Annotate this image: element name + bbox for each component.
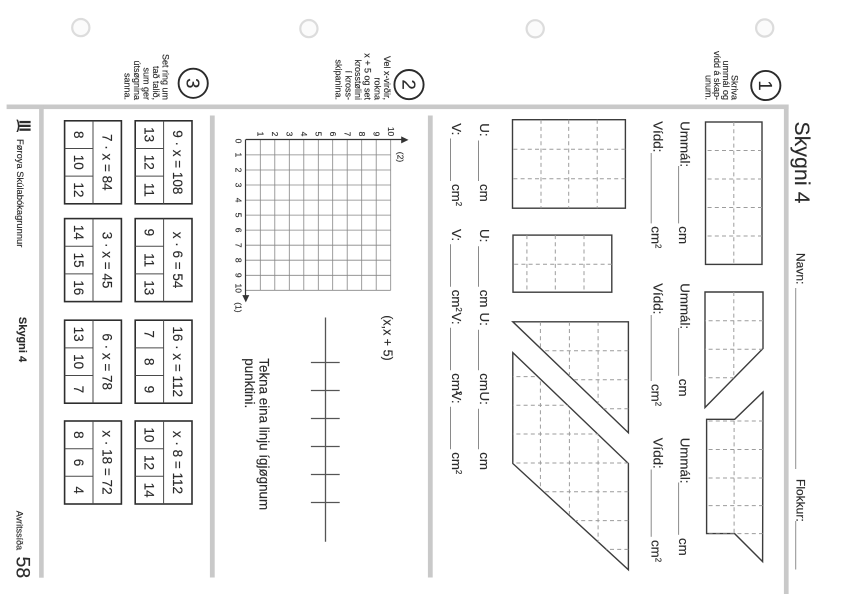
- svg-text:Vídd:: Vídd:: [650, 121, 665, 152]
- svg-text:(x,x + 5): (x,x + 5): [381, 315, 395, 361]
- svg-text:V:: V:: [449, 313, 464, 325]
- svg-text:4: 4: [234, 198, 244, 203]
- svg-text:í kross-: í kross-: [344, 70, 354, 100]
- svg-text:9: 9: [234, 273, 244, 278]
- svg-text:2: 2: [234, 168, 244, 173]
- svg-text:58: 58: [12, 557, 34, 579]
- svg-text:Skygni 4: Skygni 4: [16, 317, 28, 363]
- svg-text:Tekna eina linju ígjøgnum: Tekna eina linju ígjøgnum: [257, 358, 272, 510]
- svg-text:0: 0: [234, 139, 244, 144]
- svg-text:6: 6: [328, 132, 338, 137]
- svg-text:U:: U:: [477, 123, 492, 136]
- svg-text:cm: cm: [676, 379, 691, 397]
- svg-text:sum ger: sum ger: [141, 67, 151, 100]
- svg-text:3 · x = 45: 3 · x = 45: [99, 232, 114, 289]
- svg-text:7 · x = 84: 7 · x = 84: [99, 134, 114, 191]
- svg-text:U:: U:: [477, 313, 492, 326]
- svg-text:Set ring um: Set ring um: [160, 54, 170, 100]
- svg-text:Ummál:: Ummál:: [678, 121, 693, 167]
- svg-text:rokna: rokna: [373, 77, 383, 100]
- svg-text:U:: U:: [477, 392, 492, 405]
- svg-text:13: 13: [71, 327, 86, 342]
- svg-text:unum.: unum.: [703, 75, 713, 100]
- svg-text:6 · x = 78: 6 · x = 78: [99, 333, 114, 390]
- svg-text:9: 9: [371, 132, 381, 137]
- svg-text:sanna.: sanna.: [123, 73, 133, 100]
- svg-text:12: 12: [71, 182, 86, 197]
- svg-text:cm: cm: [676, 538, 691, 556]
- svg-text:x · 6 = 54: x · 6 = 54: [170, 232, 185, 289]
- svg-text:x · 18 = 72: x · 18 = 72: [99, 430, 114, 494]
- svg-text:Skygni 4: Skygni 4: [790, 122, 813, 204]
- svg-text:(1): (1): [234, 302, 244, 313]
- svg-text:punktini.: punktini.: [242, 358, 257, 408]
- svg-text:13: 13: [142, 127, 157, 142]
- svg-text:9 · x = 108: 9 · x = 108: [170, 130, 185, 194]
- svg-text:cm2: cm2: [649, 384, 664, 407]
- svg-text:Ummál:: Ummál:: [678, 438, 693, 484]
- svg-text:8: 8: [357, 132, 367, 137]
- svg-text:útsøgnina: útsøgnina: [132, 60, 142, 100]
- svg-text:2: 2: [398, 79, 419, 89]
- svg-text:U:: U:: [477, 229, 492, 242]
- svg-text:11: 11: [142, 183, 157, 197]
- svg-text:12: 12: [142, 155, 157, 170]
- svg-text:3: 3: [234, 183, 244, 188]
- svg-text:Avritssíða: Avritssíða: [15, 511, 25, 550]
- svg-text:12: 12: [142, 455, 157, 470]
- svg-text:(2): (2): [396, 152, 406, 163]
- svg-text:8: 8: [142, 358, 157, 366]
- svg-text:cm: cm: [477, 452, 492, 470]
- svg-text:1: 1: [255, 132, 265, 137]
- svg-text:10: 10: [142, 427, 157, 442]
- svg-text:6: 6: [71, 459, 86, 467]
- svg-text:Vídd:: Vídd:: [650, 283, 665, 314]
- svg-text:6: 6: [234, 228, 244, 233]
- svg-text:cm: cm: [477, 373, 492, 391]
- svg-text:5: 5: [234, 213, 244, 218]
- svg-text:14: 14: [71, 225, 86, 241]
- svg-text:Flokkur:: Flokkur:: [794, 479, 808, 522]
- svg-text:cm: cm: [676, 226, 691, 244]
- svg-text:Vel x-virðir,: Vel x-virðir,: [382, 56, 392, 100]
- svg-text:V:: V:: [449, 123, 464, 135]
- svg-text:9: 9: [142, 386, 157, 394]
- svg-text:cm: cm: [477, 184, 492, 202]
- svg-text:3: 3: [183, 78, 204, 88]
- svg-text:8: 8: [71, 431, 86, 439]
- svg-text:tað talið,: tað talið,: [151, 66, 161, 100]
- svg-text:11: 11: [142, 253, 157, 267]
- svg-text:cm2: cm2: [649, 540, 664, 563]
- svg-text:skipanina.: skipanina.: [334, 59, 344, 100]
- svg-text:Skriva: Skriva: [730, 75, 740, 100]
- svg-text:1: 1: [755, 80, 776, 90]
- svg-text:15: 15: [71, 253, 86, 268]
- svg-text:7: 7: [234, 243, 244, 248]
- svg-text:10: 10: [71, 354, 86, 369]
- svg-text:vídd á skap-: vídd á skap-: [712, 51, 722, 100]
- svg-text:7: 7: [142, 330, 157, 338]
- svg-text:4: 4: [299, 132, 309, 137]
- svg-text:cm2: cm2: [449, 290, 464, 313]
- svg-text:V:: V:: [449, 392, 464, 404]
- svg-text:cm: cm: [477, 290, 492, 308]
- svg-text:8: 8: [234, 258, 244, 263]
- svg-text:V:: V:: [449, 229, 464, 241]
- svg-text:16 · x = 112: 16 · x = 112: [170, 326, 185, 397]
- svg-text:7: 7: [342, 132, 352, 137]
- svg-text:x · 8 = 112: x · 8 = 112: [170, 431, 185, 494]
- svg-text:8: 8: [71, 131, 86, 139]
- svg-text:3: 3: [284, 132, 294, 137]
- svg-text:Ummál:: Ummál:: [678, 283, 693, 329]
- svg-text:7: 7: [71, 386, 86, 394]
- svg-text:10: 10: [386, 127, 396, 137]
- svg-text:14: 14: [142, 483, 157, 499]
- svg-text:cm2: cm2: [449, 452, 464, 475]
- svg-text:Vídd:: Vídd:: [650, 438, 665, 469]
- svg-text:Navn:: Navn:: [794, 253, 808, 284]
- svg-text:16: 16: [71, 280, 86, 295]
- svg-text:2: 2: [270, 132, 280, 137]
- svg-text:9: 9: [142, 229, 157, 237]
- svg-text:ummál og: ummál og: [721, 60, 731, 100]
- svg-text:5: 5: [313, 132, 323, 137]
- svg-text:x + 5 og set: x + 5 og set: [363, 53, 373, 100]
- svg-text:4: 4: [71, 486, 86, 494]
- svg-text:10: 10: [234, 284, 244, 294]
- svg-text:cm2: cm2: [649, 226, 664, 249]
- svg-text:1: 1: [234, 153, 244, 158]
- svg-text:Føroya Skúlabókagrunnur: Føroya Skúlabókagrunnur: [15, 139, 26, 247]
- svg-text:13: 13: [142, 280, 157, 295]
- svg-text:10: 10: [71, 155, 86, 170]
- svg-text:krosstølini: krosstølini: [353, 59, 363, 100]
- svg-text:cm2: cm2: [449, 184, 464, 207]
